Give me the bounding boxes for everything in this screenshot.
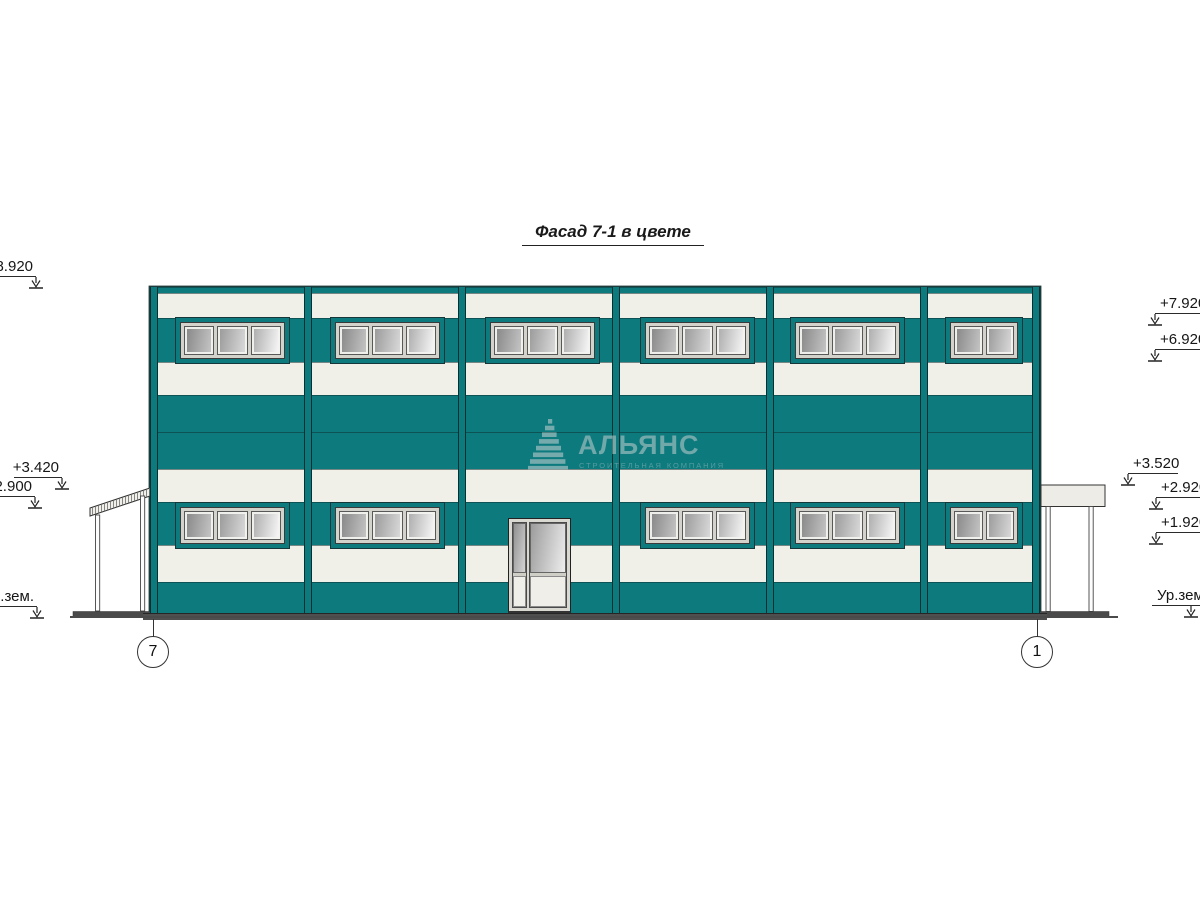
window-pane [406,511,436,540]
elevation-arrow-icon [1182,606,1200,618]
window-pane [682,326,712,355]
window-pane [954,511,983,540]
ribbon-window [945,317,1023,364]
elevation-arrow-icon [1146,350,1164,362]
window-frame [180,322,285,359]
window-pane [184,326,214,355]
axis-label: 1 [1033,643,1042,660]
window-pane [866,511,896,540]
entrance-door [508,518,571,613]
window-pane [217,511,247,540]
door-leaf-narrow [512,522,527,608]
elevation-label: Ур.зем [1157,587,1200,604]
door-leaf-wide [529,522,567,608]
elevation-marker: +6.920 [1155,331,1200,350]
window-pane [986,326,1015,355]
elevation-marker: +2.900 [0,478,35,497]
elevation-arrow-icon [28,607,46,619]
window-frame [335,507,440,544]
facade-mullion [766,287,774,613]
axis-bubble-1: 1 [1021,636,1053,668]
window-pane [649,326,679,355]
facade-band-teal [150,395,1040,432]
facade-mullion [612,287,620,613]
facade-band-teal [150,582,1040,613]
elevation-arrow-icon [53,478,71,490]
elevation-marker: +3.420 [14,459,62,478]
door-glass [513,523,526,576]
window-frame [950,507,1018,544]
drawing-title: Фасад 7-1 в цвете [522,222,704,246]
ribbon-window [640,317,755,364]
elevation-arrow-icon [1147,498,1165,510]
elevation-arrow-icon [1146,314,1164,326]
ground-line [70,616,1118,619]
window-pane [339,326,369,355]
facade-mullion [920,287,928,613]
axis-line-1 [1037,619,1038,637]
elevation-arrow-icon [1119,474,1137,486]
window-pane [649,511,679,540]
window-frame [180,507,285,544]
window-pane [372,511,402,540]
window-pane [251,326,281,355]
left-canopy [70,480,160,620]
window-pane [986,511,1015,540]
facade-mullion [1032,287,1040,613]
window-frame [645,507,750,544]
window-frame [795,322,900,359]
window-pane [217,326,247,355]
facade-drawing-canvas: Фасад 7-1 в цвете АЛЬЯНС СТРОИТ [0,0,1200,900]
axis-line-7 [153,619,154,637]
window-pane [799,511,829,540]
window-pane [716,326,746,355]
elevation-label: +1.920 [1161,514,1200,531]
elevation-marker: +7.920 [1155,295,1200,314]
right-canopy [1035,480,1120,620]
elevation-label: +2.920 [1161,479,1200,496]
window-pane [799,326,829,355]
elevation-label: +3.420 [13,459,59,476]
ribbon-window [175,317,290,364]
window-pane [832,511,862,540]
elevation-arrow-icon [1147,533,1165,545]
facade-band-white [150,469,1040,502]
ribbon-window [640,502,755,549]
ribbon-window [175,502,290,549]
elevation-marker: +2.920 [1156,479,1200,498]
window-frame [950,322,1018,359]
door-glass [530,523,566,576]
elevation-marker: Ур.зем. [0,588,37,607]
ribbon-window [945,502,1023,549]
elevation-label: +8.920 [0,258,33,275]
ribbon-window [330,317,445,364]
facade-band-teal [150,432,1040,469]
facade-mullion [150,287,158,613]
elevation-label: +2.900 [0,478,32,495]
window-pane [339,511,369,540]
window-pane [494,326,524,355]
elevation-marker: +1.920 [1156,514,1200,533]
elevation-arrow-icon [26,497,44,509]
ribbon-window [330,502,445,549]
window-frame [795,507,900,544]
window-pane [716,511,746,540]
window-frame [335,322,440,359]
door-panel [513,576,526,607]
axis-bubble-7: 7 [137,636,169,668]
window-pane [406,326,436,355]
ribbon-window [485,317,600,364]
elevation-label: +3.520 [1133,455,1179,472]
window-frame [490,322,595,359]
facade-mullion [458,287,466,613]
ribbon-window [790,317,905,364]
window-pane [251,511,281,540]
building-facade [150,287,1040,613]
elevation-label: +7.920 [1160,295,1200,312]
elevation-arrow-icon [27,277,45,289]
facade-band-white [150,545,1040,582]
facade-mullion [304,287,312,613]
window-frame [645,322,750,359]
facade-band-white [150,293,1040,318]
window-pane [372,326,402,355]
window-pane [866,326,896,355]
window-pane [184,511,214,540]
window-pane [954,326,983,355]
window-pane [561,326,591,355]
window-pane [832,326,862,355]
elevation-label: Ур.зем. [0,588,34,605]
window-pane [682,511,712,540]
axis-label: 7 [149,643,158,660]
window-pane [527,326,557,355]
elevation-label: +6.920 [1160,331,1200,348]
elevation-marker: +3.520 [1128,455,1178,474]
door-panel [530,576,566,607]
elevation-marker: Ур.зем [1152,587,1200,606]
ribbon-window [790,502,905,549]
elevation-marker: +8.920 [0,258,36,277]
facade-band-white [150,362,1040,395]
